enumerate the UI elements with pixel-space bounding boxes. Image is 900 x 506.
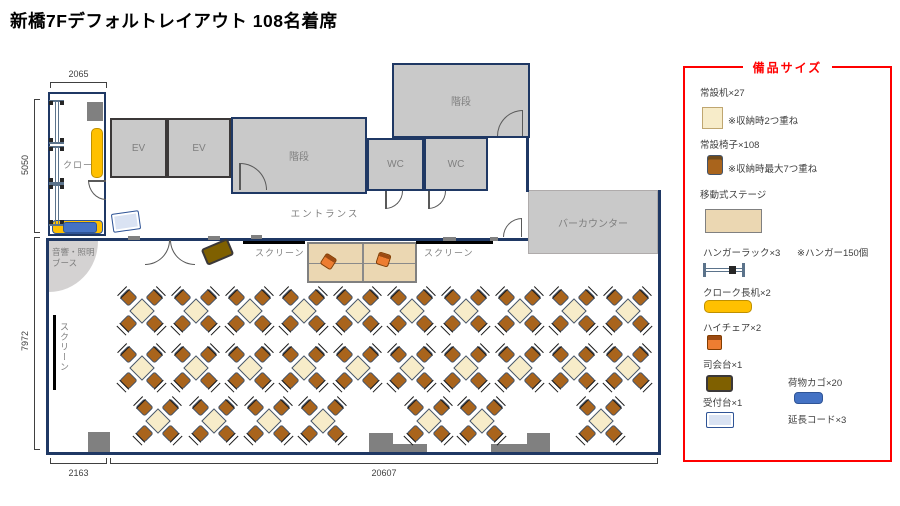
legend-title-text: 備品サイズ [743,61,833,75]
door-leaf [428,191,430,209]
dimension-label-upper-height: 5050 [20,148,30,182]
hanger-bundle [60,185,64,189]
wall-fixture [251,235,262,239]
table-cluster [390,289,436,335]
hanger-bundle [49,138,53,142]
legend-item-basket-label: 荷物カゴ×20 [788,375,842,389]
door-arc-entrance-right [503,218,522,237]
table-cluster [301,399,347,445]
wc-1: WC [367,138,424,191]
legend-item-chair-label: 常設椅子×108 [700,137,759,151]
screen-side-wall [53,315,56,390]
stairs-main-label: 階段 [289,148,309,163]
cloak-room-label: クロー [63,158,93,171]
pillar [87,102,103,121]
table-cluster [120,346,166,392]
hanger-rack-bar [49,224,64,226]
hanger-rack-icon [703,263,745,277]
chair-icon [707,155,723,175]
table-cluster [552,346,598,392]
pillar [527,433,550,452]
legend-item-cloak-desk-label: クローク長机×2 [703,285,771,299]
legend-item-desk-label: 常設机×27 [700,85,745,99]
wc-2-label: WC [448,159,465,170]
luggage-baskets [63,222,97,233]
door-arc-wc-1 [385,191,403,209]
dimension-line-bottom-main [110,458,658,464]
sound-lighting-booth-label: 音響・照明 ブース [52,247,95,269]
wall-segment [526,138,529,192]
basket-icon [794,392,823,404]
legend-item-reception-label: 受付台×1 [703,395,742,409]
table-cluster [228,289,274,335]
screen-right [416,241,493,244]
wall-segment [658,190,661,241]
legend-item-stage-label: 移動式ステージ [700,187,766,201]
table-cluster [336,346,382,392]
table-cluster [228,346,274,392]
table-cluster [174,346,220,392]
elevator-1-label: EV [132,143,145,154]
hanger-bundle [49,178,53,182]
hanger-rack-rail [55,148,59,182]
door-leaf [88,180,106,182]
reception-desk-icon [706,412,734,428]
table-cluster [174,289,220,335]
table-cluster [579,399,625,445]
table-cluster [247,399,293,445]
table-cluster [336,289,382,335]
table-cluster [460,399,506,445]
mc-stand-icon [706,375,733,392]
entrance-label: エントランス [278,206,372,220]
booth-label-line1: 音響・照明 [52,247,95,258]
wall-fixture [128,236,140,240]
booth-label-line2: ブース [52,258,95,269]
door-leaf [521,218,523,237]
table-cluster [407,399,453,445]
dimension-label-bottom-left: 2163 [50,468,107,478]
legend-item-hanger-note: ※ハンガー150個 [797,245,868,259]
hanger-bundle [49,147,53,151]
dimension-line-cloak-width [50,82,107,88]
dimension-line-bottom-left [50,458,107,464]
hanger-rack-rail [55,102,59,142]
cloak-desk-icon [704,300,752,313]
door-leaf [239,163,241,190]
hanger-bundle [49,185,53,189]
hanger-bundle [49,220,53,224]
hanger-rack [49,184,64,226]
door-leaf [522,110,524,136]
screen-left-label: スクリーン [255,246,305,259]
table-cluster [390,346,436,392]
dimension-line-lower-height [34,237,40,450]
wc-2: WC [424,137,488,191]
pillar [369,433,393,452]
stage-icon [705,209,762,233]
wc-1-label: WC [387,159,404,170]
table-cluster [444,289,490,335]
hanger-rack-bar [49,142,64,144]
legend-item-mc-label: 司会台×1 [703,357,742,371]
table-cluster [606,289,652,335]
bar-counter: バーカウンター [528,190,658,254]
legend-item-high-chair-label: ハイチェア×2 [703,320,761,334]
dimension-line-upper-height [34,99,40,233]
elevator-2: EV [167,118,231,178]
hanger-rack [49,146,64,184]
dimension-label-lower-height: 7972 [20,324,30,358]
bar-counter-label: バーカウンター [558,215,628,230]
hanger-bundle [60,101,64,105]
floor-plan-page: 新橋7Fデフォルトレイアウト 108名着席 2065 5050 7972 216… [0,0,900,506]
hanger-rack-rail [55,186,59,224]
screen-left [243,241,305,244]
legend-item-cord-label: 延長コード×3 [788,412,846,426]
legend-item-desk-note: ※収納時2つ重ね [728,113,798,127]
door-arc-wc-2 [428,191,446,209]
table-cluster [282,346,328,392]
legend-item-chair-note: ※収納時最大7つ重ね [728,161,817,175]
table-cluster [498,346,544,392]
pillar [88,432,110,452]
table-cluster [136,399,182,445]
page-title: 新橋7Fデフォルトレイアウト 108名着席 [10,8,337,33]
screen-right-label: スクリーン [424,246,474,259]
reception-desk [111,210,141,233]
hanger-rack-post [742,263,745,277]
dimension-label-cloak-width: 2065 [50,69,107,79]
screen-side-label: スクリーン [58,322,71,372]
hanger-rack-post [703,263,706,277]
hanger-rack [49,100,64,144]
hanger-bundle [60,147,64,151]
desk-icon [702,107,723,129]
dimension-label-bottom-main: 20607 [110,468,658,478]
table-cluster [120,289,166,335]
table-cluster [192,399,238,445]
table-cluster [444,346,490,392]
pillar [393,444,427,452]
hanger-bundle [729,266,736,274]
legend-title: 備品サイズ [685,59,890,77]
table-cluster [606,346,652,392]
table-cluster [498,289,544,335]
hanger-bundle [49,101,53,105]
legend-item-hanger-label: ハンガーラック×3 [703,245,780,259]
stairs-top-label: 階段 [451,93,471,108]
elevator-1: EV [110,118,167,178]
table-cluster [552,289,598,335]
hanger-rack-rail [705,268,743,272]
high-chair-icon [707,335,722,350]
wall-fixture [208,236,220,240]
hanger-bundle [60,138,64,142]
hanger-bundle [60,178,64,182]
elevator-2-label: EV [192,143,205,154]
door-leaf [385,191,387,209]
table-cluster [282,289,328,335]
